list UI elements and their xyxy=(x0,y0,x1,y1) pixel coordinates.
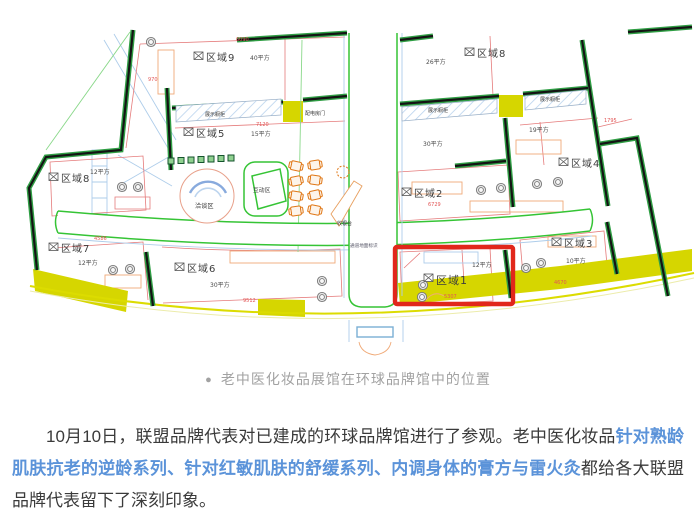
svg-text:19平方: 19平方 xyxy=(529,126,549,134)
zone-7-label: 区域712平方 xyxy=(49,242,98,267)
svg-text:展示橱柜: 展示橱柜 xyxy=(540,96,560,103)
furniture xyxy=(108,37,562,301)
chairs xyxy=(288,159,323,216)
figure-caption: ●老中医化妆品展馆在环球品牌馆中的位置 xyxy=(0,369,696,389)
svg-text:展示橱柜: 展示橱柜 xyxy=(428,107,448,114)
svg-text:区域3: 区域3 xyxy=(564,237,593,250)
zone-3-label: 区域310平方 xyxy=(552,237,593,265)
floorplan-image[interactable]: 6090 970 7120 6729 1795 4586 5307 4670 9… xyxy=(0,0,696,358)
svg-text:收银台: 收银台 xyxy=(337,220,352,227)
zone-4-label: 区域419平方 xyxy=(529,126,600,170)
svg-text:40平方: 40平方 xyxy=(250,54,270,62)
svg-text:12平方: 12平方 xyxy=(472,261,492,269)
svg-text:区域7: 区域7 xyxy=(61,242,90,255)
svg-text:区域1: 区域1 xyxy=(436,274,468,287)
zone-6-label: 区域630平方 xyxy=(175,262,230,289)
svg-text:12平方: 12平方 xyxy=(90,168,110,176)
svg-text:区域6: 区域6 xyxy=(187,262,216,275)
svg-text:12平方: 12平方 xyxy=(78,259,98,267)
article-paragraph: 10月10日，联盟品牌代表对已建成的环球品牌馆进行了参观。老中医化妆品针对熟龄肌… xyxy=(12,421,684,517)
svg-text:4586: 4586 xyxy=(94,236,107,242)
svg-text:洽谈区: 洽谈区 xyxy=(195,202,214,210)
floorplan-figure: 6090 970 7120 6729 1795 4586 5307 4670 9… xyxy=(0,0,696,389)
svg-text:30平方: 30平方 xyxy=(210,281,230,289)
svg-text:30平方: 30平方 xyxy=(423,140,443,148)
svg-text:10平方: 10平方 xyxy=(566,257,586,265)
construction-lines xyxy=(92,34,176,228)
svg-text:4670: 4670 xyxy=(554,280,567,286)
caption-bullet-icon: ● xyxy=(205,374,213,386)
svg-text:区域2: 区域2 xyxy=(414,187,443,200)
horizontal-corridor xyxy=(56,209,593,250)
plant xyxy=(337,166,349,178)
svg-text:配电房门: 配电房门 xyxy=(305,110,325,117)
zone-2-label: 区域230平方 xyxy=(402,140,443,200)
svg-text:970: 970 xyxy=(148,77,158,83)
svg-text:6090: 6090 xyxy=(236,37,249,43)
talk-area xyxy=(180,169,234,223)
zone-5-label: 区域515平方 xyxy=(184,127,271,140)
svg-text:5307: 5307 xyxy=(444,294,457,300)
zone-labels: 区域940平方 区域826平方 区域515平方 区域419平方 区域230平方 … xyxy=(49,47,600,289)
article-page: 6090 970 7120 6729 1795 4586 5307 4670 9… xyxy=(0,0,696,529)
svg-text:通道地面标识: 通道地面标识 xyxy=(350,242,378,249)
paragraph-text-1: 10月10日，联盟品牌代表对已建成的环球品牌馆进行了参观。老中医化妆品 xyxy=(46,427,616,446)
svg-text:26平方: 26平方 xyxy=(426,58,446,66)
cabinet-row xyxy=(168,155,234,164)
caption-text: 老中医化妆品展馆在环球品牌馆中的位置 xyxy=(221,371,491,387)
svg-text:区域8: 区域8 xyxy=(477,47,506,60)
svg-text:展示橱柜: 展示橱柜 xyxy=(205,111,225,118)
svg-text:区域9: 区域9 xyxy=(206,51,235,64)
svg-text:互动区: 互动区 xyxy=(253,187,271,194)
svg-text:1795: 1795 xyxy=(604,118,617,124)
zone-9-label: 区域940平方 xyxy=(194,51,270,64)
svg-text:6729: 6729 xyxy=(428,202,441,208)
svg-text:15平方: 15平方 xyxy=(251,130,271,138)
zone-8r-label: 区域826平方 xyxy=(426,47,506,66)
svg-text:区域8: 区域8 xyxy=(61,172,90,185)
svg-text:区域4: 区域4 xyxy=(571,157,600,170)
svg-text:9512: 9512 xyxy=(243,298,256,304)
svg-text:7120: 7120 xyxy=(256,122,269,128)
svg-text:区域5: 区域5 xyxy=(196,127,225,140)
